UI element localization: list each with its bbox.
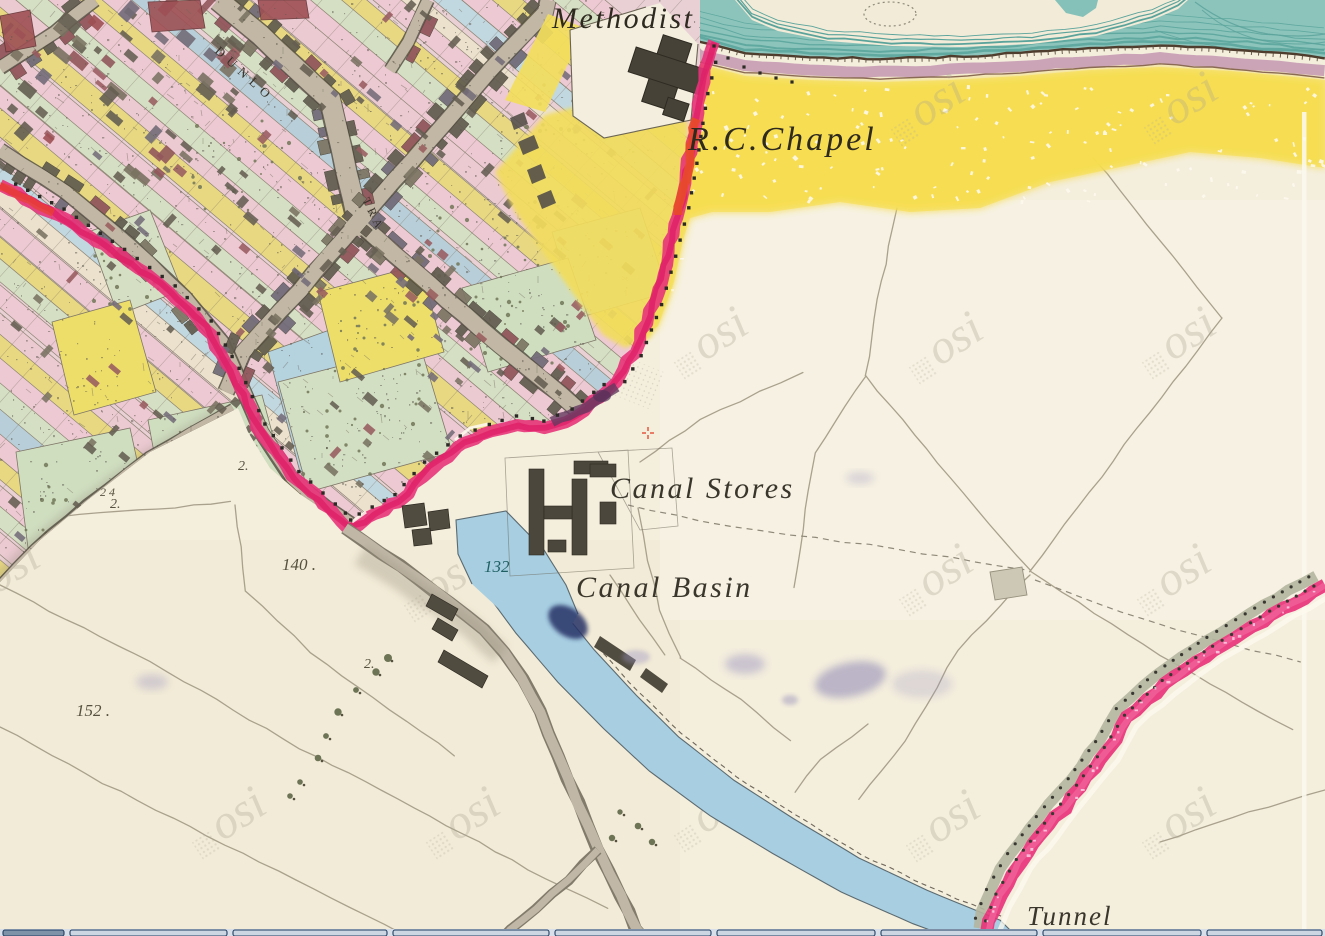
svg-text:2.: 2. <box>238 459 249 474</box>
svg-text:Canal Basin: Canal Basin <box>576 571 753 604</box>
svg-text:2.: 2. <box>110 497 121 512</box>
svg-text:R.C.Chapel: R.C.Chapel <box>687 121 877 158</box>
svg-text:2 4: 2 4 <box>100 485 115 499</box>
svg-text:140 .: 140 . <box>282 555 316 574</box>
svg-text:132: 132 <box>484 557 510 576</box>
svg-text:Tunnel: Tunnel <box>1027 901 1113 931</box>
svg-text:152 .: 152 . <box>76 701 110 720</box>
svg-text:2.: 2. <box>364 657 375 672</box>
svg-text:Canal Stores: Canal Stores <box>610 472 795 505</box>
svg-text:Methodist: Methodist <box>551 2 695 35</box>
